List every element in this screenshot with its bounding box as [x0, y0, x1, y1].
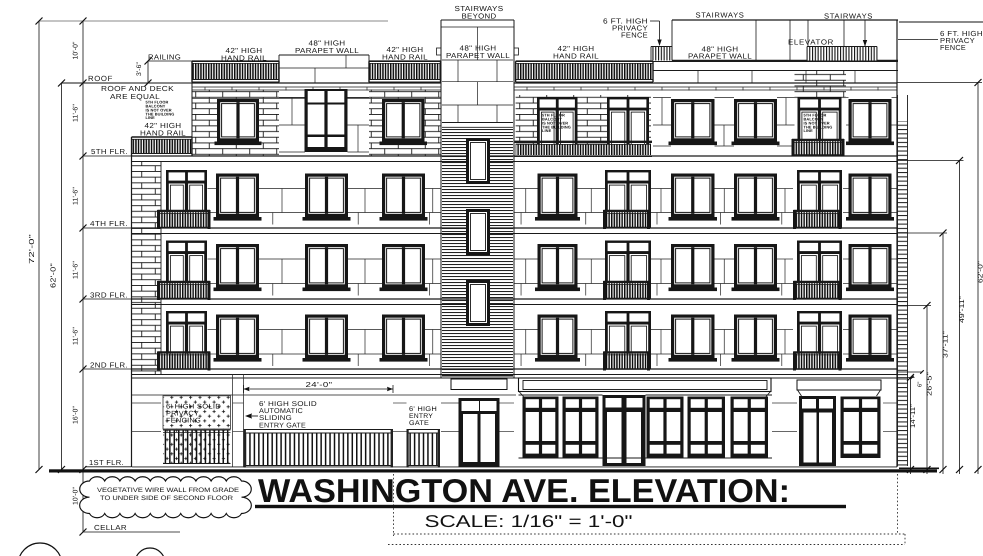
svg-text:PARAPET WALL: PARAPET WALL	[688, 52, 752, 61]
svg-text:SLIDING: SLIDING	[259, 415, 292, 422]
svg-text:24'-0": 24'-0"	[306, 380, 333, 389]
svg-text:1ST FLR.: 1ST FLR.	[89, 458, 124, 467]
svg-text:62'-0": 62'-0"	[978, 260, 983, 283]
svg-text:STAIRWAYS: STAIRWAYS	[696, 11, 745, 20]
svg-text:2ND FLR.: 2ND FLR.	[90, 361, 128, 370]
svg-text:10'-0": 10'-0"	[73, 41, 80, 59]
svg-text:16'-0": 16'-0"	[73, 406, 80, 424]
svg-text:VEGETATIVE WIRE WALL FROM GRAD: VEGETATIVE WIRE WALL FROM GRADE	[97, 487, 239, 494]
svg-text:LINE: LINE	[804, 128, 814, 133]
svg-text:LINE: LINE	[542, 128, 552, 133]
svg-text:ELEVATOR: ELEVATOR	[788, 38, 834, 47]
svg-text:72'-0": 72'-0"	[27, 234, 36, 264]
svg-text:ENTRY GATE: ENTRY GATE	[259, 423, 306, 430]
svg-text:TO UNDER SIDE OF SECOND FLOOR: TO UNDER SIDE OF SECOND FLOOR	[100, 495, 233, 502]
svg-text:HAND RAIL: HAND RAIL	[553, 52, 599, 61]
svg-text:PARAPET WALL: PARAPET WALL	[295, 46, 359, 55]
svg-text:FENCING: FENCING	[166, 418, 201, 425]
svg-text:ROOF: ROOF	[88, 74, 113, 83]
svg-text:ENTRY: ENTRY	[409, 413, 433, 420]
svg-text:ARE EQUAL: ARE EQUAL	[110, 92, 160, 101]
svg-text:PRIVACY: PRIVACY	[166, 411, 199, 418]
svg-text:FENCE: FENCE	[940, 43, 966, 52]
svg-text:11'-6": 11'-6"	[73, 104, 80, 122]
svg-text:26'-5": 26'-5"	[927, 371, 934, 396]
svg-text:GATE: GATE	[409, 420, 429, 427]
svg-text:CELLAR: CELLAR	[94, 523, 127, 532]
svg-text:LINE: LINE	[146, 115, 156, 120]
svg-text:WASHINGTON AVE. ELEVATION:: WASHINGTON AVE. ELEVATION:	[258, 472, 790, 509]
svg-text:RAILING: RAILING	[148, 53, 181, 62]
svg-text:11'-6": 11'-6"	[73, 327, 80, 345]
svg-text:6": 6"	[917, 382, 924, 387]
svg-text:3'-6": 3'-6"	[136, 61, 143, 76]
svg-text:62'-0": 62'-0"	[49, 263, 58, 288]
svg-text:37'-11": 37'-11"	[943, 330, 950, 358]
svg-text:FENCE: FENCE	[621, 31, 648, 40]
svg-text:49'-11": 49'-11"	[959, 295, 966, 323]
svg-text:5TH FLR.: 5TH FLR.	[91, 147, 128, 156]
svg-text:11'-6": 11'-6"	[73, 261, 80, 279]
svg-text:10'-0": 10'-0"	[73, 487, 80, 505]
svg-text:HAND RAIL: HAND RAIL	[140, 129, 186, 138]
svg-text:14'-11": 14'-11"	[910, 404, 917, 428]
svg-text:11'-6": 11'-6"	[73, 187, 80, 205]
svg-text:6' HIGH SOLID: 6' HIGH SOLID	[166, 404, 221, 411]
svg-text:3RD FLR.: 3RD FLR.	[90, 291, 128, 300]
svg-text:PARAPET WALL: PARAPET WALL	[446, 51, 510, 60]
svg-text:6' HIGH: 6' HIGH	[409, 406, 437, 413]
svg-text:AUTOMATIC: AUTOMATIC	[259, 408, 303, 415]
svg-text:BEYOND: BEYOND	[462, 12, 497, 21]
svg-text:4TH FLR.: 4TH FLR.	[90, 219, 128, 228]
svg-text:HAND RAIL: HAND RAIL	[221, 54, 267, 63]
svg-text:HAND RAIL: HAND RAIL	[382, 53, 428, 62]
svg-text:6' HIGH SOLID: 6' HIGH SOLID	[259, 401, 317, 408]
svg-text:SCALE: 1/16" = 1'-0": SCALE: 1/16" = 1'-0"	[425, 512, 633, 531]
svg-text:STAIRWAYS: STAIRWAYS	[824, 12, 873, 21]
